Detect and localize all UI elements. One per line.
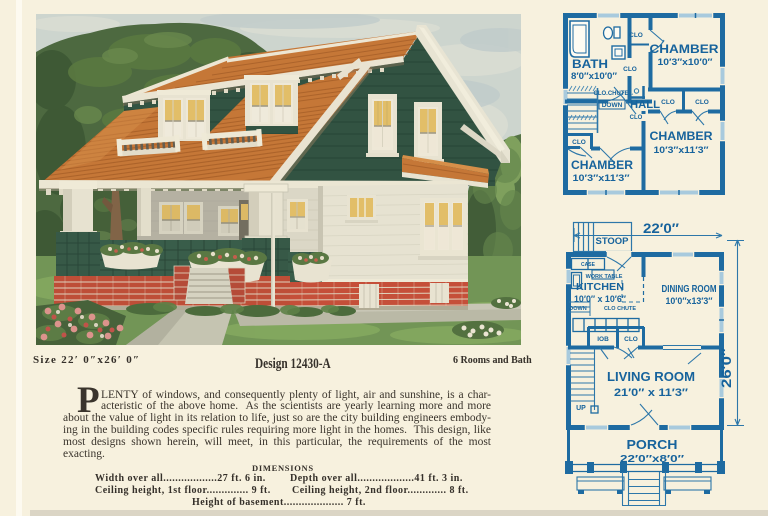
svg-text:8′0″x10′0″: 8′0″x10′0″ [571,71,617,82]
svg-text:DOWN: DOWN [602,102,623,109]
svg-text:WORK TABLE: WORK TABLE [586,274,623,280]
svg-text:CLO: CLO [623,66,637,73]
svg-text:CLO: CLO [572,139,586,146]
svg-text:CLO: CLO [629,32,643,39]
svg-text:10′3″x10′0″: 10′3″x10′0″ [658,57,713,68]
svg-text:CLO CHUTE: CLO CHUTE [604,306,636,312]
svg-text:10′0″ x 10′6″: 10′0″ x 10′6″ [574,294,627,304]
svg-text:CASE: CASE [581,262,596,268]
svg-text:KITCHEN: KITCHEN [576,281,624,293]
svg-text:STOOP: STOOP [596,236,629,246]
svg-text:PORCH: PORCH [627,438,678,452]
svg-text:DINING ROOM: DINING ROOM [662,283,717,295]
svg-text:22′0″: 22′0″ [643,220,679,236]
svg-text:HALL: HALL [630,99,660,111]
svg-text:10′0″x13′3″: 10′0″x13′3″ [666,296,714,306]
svg-text:10′3″x11′3″: 10′3″x11′3″ [654,145,709,156]
svg-text:CLO.CHUTE→: CLO.CHUTE→ [594,91,635,97]
svg-text:CHAMBER: CHAMBER [650,42,719,56]
svg-text:LIVING ROOM: LIVING ROOM [607,369,695,384]
svg-text:CLO: CLO [624,336,638,343]
svg-text:CHAMBER: CHAMBER [650,129,713,143]
svg-text:CLO: CLO [630,115,643,121]
svg-text:UP: UP [576,405,586,412]
svg-text:BATH: BATH [572,57,608,71]
svg-text:DOWN: DOWN [569,306,586,312]
svg-text:CHAMBER: CHAMBER [571,158,633,172]
svg-text:21′0″ x 11′3″: 21′0″ x 11′3″ [614,387,689,399]
svg-text:CLO: CLO [661,99,675,106]
svg-text:CLO: CLO [695,99,709,106]
svg-text:26′0″: 26′0″ [718,348,734,388]
svg-text:IOB: IOB [597,336,609,343]
svg-text:22′0″x8′0″: 22′0″x8′0″ [620,453,684,465]
svg-text:10′3″x11′3″: 10′3″x11′3″ [573,173,631,184]
